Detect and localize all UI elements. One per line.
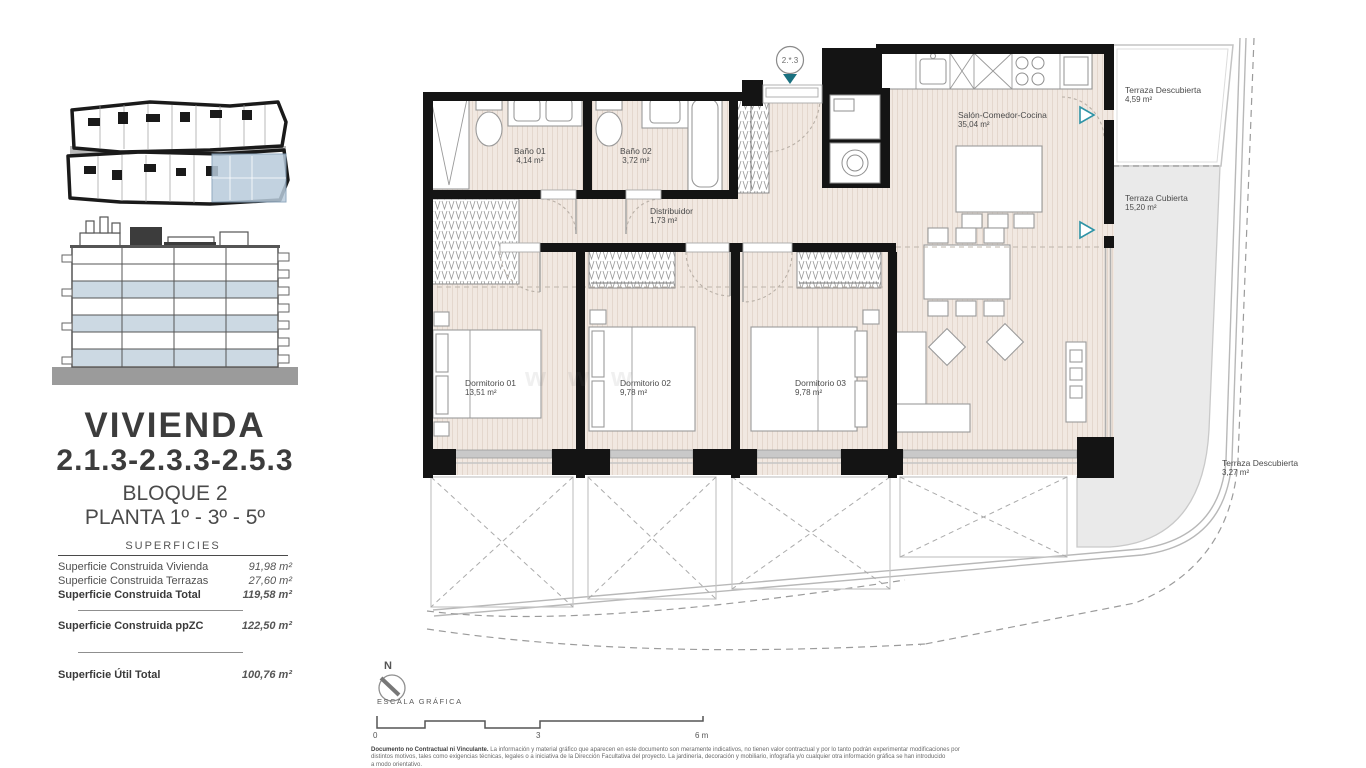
room-label-dorm1: Dormitorio 0113,51 m²	[465, 378, 516, 398]
disclaimer: Documento no Contractual ni Vinculante. …	[371, 747, 1077, 768]
room-label-bano2: Baño 023,72 m²	[620, 146, 652, 166]
room-label-dorm3: Dormitorio 039,78 m²	[795, 378, 846, 398]
surface-row-ppzc: Superficie Construida ppZC122,50 m²	[58, 620, 292, 632]
unit-numbers: 2.1.3-2.3.3-2.5.3	[25, 444, 325, 478]
surfaces-header: SUPERFICIES	[58, 540, 288, 552]
terrace-uncovered-top	[1113, 45, 1233, 166]
kitchen-island	[956, 146, 1042, 212]
building-elevation	[50, 215, 300, 387]
room-label-terraza-desc-1: Terraza Descubierta4,59 m²	[1125, 85, 1201, 105]
north-label: N	[384, 660, 392, 672]
block-label: BLOQUE 2	[25, 481, 325, 506]
floor-label: PLANTA 1º - 3º - 5º	[25, 506, 325, 530]
scale-tick-6: 6 m	[695, 731, 708, 740]
divider	[78, 610, 243, 611]
watermark: www	[525, 362, 654, 393]
shower	[429, 97, 469, 189]
room-label-terraza-desc-2: Terraza Descubierta3,27 m²	[1222, 458, 1298, 478]
page-title: VIVIENDA	[25, 408, 325, 444]
room-label-salon: Salón-Comedor-Cocina35,04 m²	[958, 110, 1047, 130]
divider	[78, 652, 243, 653]
room-label-distribuidor: Distribuidor1,73 m²	[650, 206, 693, 226]
key-plan	[60, 96, 290, 208]
room-label-bano1: Baño 014,14 m²	[514, 146, 546, 166]
surface-row-util: Superficie Útil Total100,76 m²	[58, 669, 292, 681]
scale-title: ESCALA GRÁFICA	[377, 697, 463, 706]
room-label-terraza-cub: Terraza Cubierta15,20 m²	[1125, 193, 1188, 213]
projection-boxes	[431, 477, 1067, 607]
floorplan-page: VIVIENDA 2.1.3-2.3.3-2.5.3 BLOQUE 2 PLAN…	[0, 0, 1366, 768]
surfaces-rule	[58, 555, 288, 556]
dining-table	[924, 245, 1010, 299]
scale-tick-3: 3	[536, 731, 540, 740]
sidebar-title-block: VIVIENDA 2.1.3-2.3.3-2.5.3 BLOQUE 2 PLAN…	[25, 408, 325, 530]
surface-row: Superficie Construida Vivienda91,98 m²	[58, 561, 292, 573]
scale-tick-0: 0	[373, 731, 377, 740]
surface-row: Superficie Construida Terrazas27,60 m²	[58, 575, 292, 587]
scale-bar	[377, 716, 703, 728]
surface-row-total: Superficie Construida Total119,58 m²	[58, 589, 292, 601]
unit-marker-label: 2.*.3	[772, 56, 808, 65]
laundry-stack	[830, 95, 880, 183]
